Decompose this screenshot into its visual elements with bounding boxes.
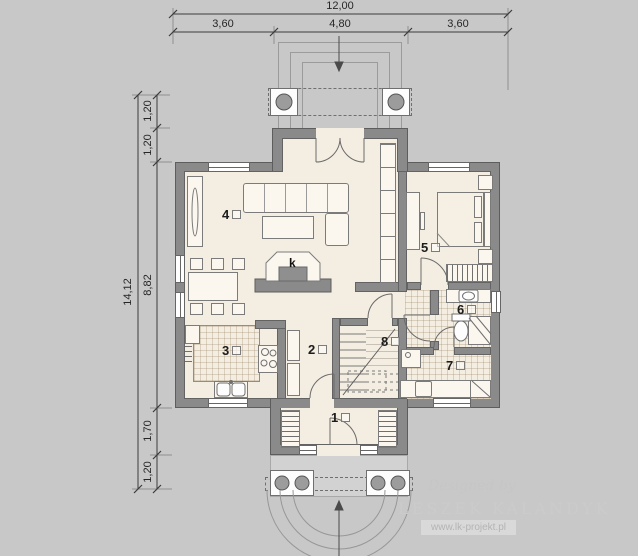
window-dining-left-lower	[175, 292, 185, 318]
window-entry-sidelight-left	[299, 445, 317, 455]
room-label-kitchen: 3	[222, 343, 241, 358]
terrace-door-opening	[316, 128, 364, 139]
dim-top-seg-2: 4,80	[329, 18, 350, 30]
dining-chair	[232, 303, 245, 315]
bedroom-desk	[406, 192, 420, 250]
window-dining-left-upper	[175, 255, 185, 283]
hall-closet-upper	[287, 330, 300, 361]
wall-bath-utility-right	[454, 347, 491, 355]
room-number: 2	[308, 342, 315, 357]
nightstand-bottom	[478, 249, 493, 264]
room-label-pantry: 8	[381, 334, 400, 349]
entry-door-opening	[317, 445, 360, 456]
room-number: 6	[457, 302, 464, 317]
room-number: 1	[331, 410, 338, 425]
room-number: 5	[421, 240, 428, 255]
utility-sink	[415, 381, 432, 397]
entry-arrow	[335, 501, 343, 556]
tv-cabinet	[187, 176, 203, 247]
dining-table	[188, 272, 238, 301]
watermark-website: www.lk-projekt.pl	[421, 520, 516, 535]
room-label-square	[232, 210, 241, 219]
bedroom-wardrobe	[446, 264, 493, 282]
room-label-square	[391, 337, 400, 346]
fireplace-label: k	[289, 256, 296, 270]
vestibule-wardrobe-right	[378, 410, 397, 448]
wall-stairs-left	[332, 318, 340, 399]
room-label-square	[456, 361, 465, 370]
bathroom-vanity	[446, 289, 491, 303]
porch-column-block-left	[270, 470, 314, 496]
bed-headboard	[484, 192, 491, 247]
porch-column-block-right	[366, 470, 410, 496]
room-label-square	[431, 243, 440, 252]
dining-chair	[232, 258, 245, 270]
sofa-chaise	[325, 213, 349, 246]
dim-top-seg-1: 3,60	[212, 18, 233, 30]
utility-boiler	[470, 380, 491, 398]
dim-left-seg-3: 8,82	[142, 274, 154, 295]
floor-plan-canvas: 12,00 3,60 4,80 3,60 14,12 1,20 1,20 8,8…	[0, 0, 638, 556]
stove	[258, 345, 278, 373]
dim-left-seg-5: 1,20	[142, 461, 154, 482]
watermark-designed-by: Designed by	[428, 478, 516, 494]
dim-left-seg-1: 1,20	[142, 100, 154, 121]
window-living-top	[208, 162, 250, 172]
kitchen-sink-unit	[214, 381, 248, 398]
dim-left-seg-2: 1,20	[142, 134, 154, 155]
dim-total-height: 14,12	[122, 278, 134, 306]
room-label-square	[232, 346, 241, 355]
hall-closet-lower	[287, 363, 300, 396]
dim-top-seg-3: 3,60	[447, 18, 468, 30]
bedroom-desk-chair	[420, 212, 425, 230]
nightstand-top	[478, 175, 493, 190]
room-number: 3	[222, 343, 229, 358]
dining-chair	[190, 303, 203, 315]
bed-pillow	[474, 196, 482, 218]
room-number: 4	[222, 207, 229, 222]
room-label-living: 4	[222, 207, 241, 222]
watermark-author: LESZEK KALANDYK	[398, 499, 610, 518]
room-label-hall: 2	[308, 342, 327, 357]
dining-chair	[211, 303, 224, 315]
vestibule-wardrobe-left	[281, 410, 300, 448]
coffee-table	[262, 216, 314, 239]
wall-bathroom-left	[430, 290, 439, 315]
room-label-utility: 7	[446, 358, 465, 373]
bed-pillow	[474, 222, 482, 243]
wall-bedroom-bottom-left	[407, 282, 421, 290]
porch-steps-arcs	[267, 490, 411, 556]
dim-left-seg-4: 1,70	[142, 420, 154, 441]
room-label-square	[467, 305, 476, 314]
wall-stairs-top-right	[392, 318, 398, 326]
bay-shelving-unit	[380, 143, 396, 283]
window-bathroom-right	[491, 291, 501, 313]
wall-stairs-top-left	[340, 318, 368, 326]
terrace-column-right	[382, 88, 410, 116]
room-label-vestibule: 1	[331, 410, 350, 425]
room-number: 8	[381, 334, 388, 349]
window-utility-bottom	[433, 398, 471, 408]
window-bedroom-top	[428, 162, 470, 172]
room-number: 7	[446, 358, 453, 373]
dining-chair	[190, 258, 203, 270]
fridge	[185, 325, 200, 344]
terrace-column-left	[270, 88, 298, 116]
floor-hall-vestibule-doorway	[310, 398, 334, 409]
sofa	[243, 183, 349, 213]
window-entry-sidelight-right	[360, 445, 378, 455]
dining-chair	[211, 258, 224, 270]
room-label-square	[318, 345, 327, 354]
wall-kitchen-hall	[277, 328, 286, 399]
window-kitchen-bottom	[208, 398, 248, 408]
room-label-square	[341, 413, 350, 422]
washer	[401, 349, 421, 368]
room-label-bathroom: 6	[457, 302, 476, 317]
shower	[468, 316, 491, 345]
room-label-bedroom: 5	[421, 240, 440, 255]
kitchen-vent-hatch	[185, 346, 192, 364]
dim-total-width: 12,00	[326, 0, 354, 12]
